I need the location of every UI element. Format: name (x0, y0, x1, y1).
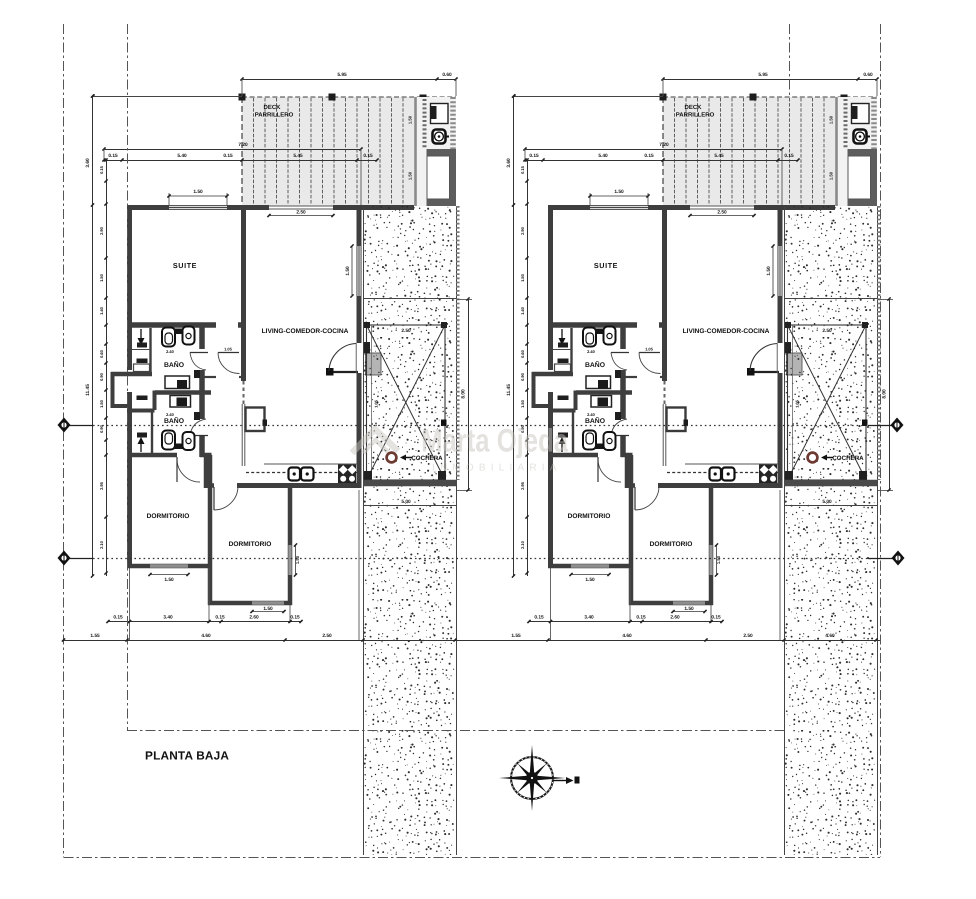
svg-text:Marta Ojeda: Marta Ojeda (421, 423, 569, 459)
svg-text:2.50: 2.50 (322, 633, 332, 639)
svg-text:4.60: 4.60 (201, 633, 211, 639)
svg-text:4.60: 4.60 (825, 633, 835, 639)
svg-text:PLANTA BAJA: PLANTA BAJA (145, 749, 229, 763)
svg-text:1.55: 1.55 (511, 633, 521, 639)
svg-text:4.60: 4.60 (622, 633, 632, 639)
svg-text:2.50: 2.50 (743, 633, 753, 639)
svg-text:1.55: 1.55 (90, 633, 100, 639)
svg-text:INMOBILIARIA: INMOBILIARIA (432, 463, 562, 474)
